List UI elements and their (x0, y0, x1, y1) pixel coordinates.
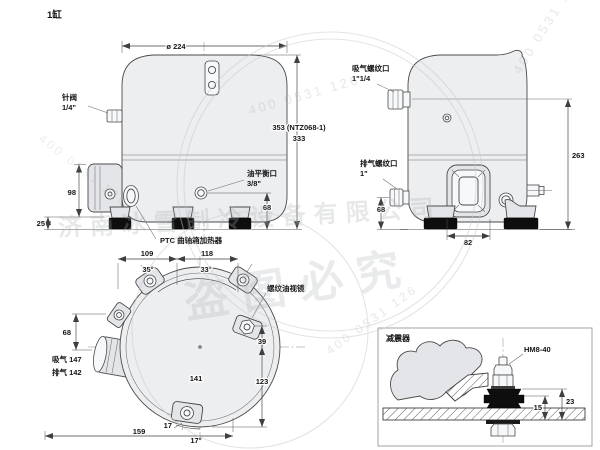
side-263-label: 263 (572, 151, 585, 160)
mounting-lug-bottom (171, 401, 203, 424)
top-68-label: 68 (63, 328, 71, 337)
front-height-label-2: 333 (293, 134, 306, 143)
page-title: 1缸 (47, 9, 62, 21)
technical-drawing: 1缸 (0, 0, 600, 450)
top-17-label: 17 (164, 421, 172, 430)
oil-balance-port (195, 187, 207, 199)
lifting-lug (205, 61, 219, 95)
oil-port-size: 3/8" (247, 179, 261, 188)
oil-port-label: 油平衡口 (247, 168, 277, 178)
needle-valve-size: 1/4" (62, 103, 76, 112)
needle-valve-leader (88, 106, 108, 113)
detail-15-label: 15 (534, 403, 542, 412)
detail-23-label: 23 (566, 397, 574, 406)
top-35deg-label: 35° (142, 265, 153, 274)
front-25-label: 25 (37, 219, 45, 228)
watermark-phone: 400 0531 126 (510, 0, 584, 77)
bolt-spec-label: HM8-40 (524, 345, 551, 354)
detail-view: 减震器 (378, 328, 592, 446)
shell-plug (443, 114, 451, 122)
damper-grommet (484, 389, 524, 408)
front-diameter-label: ø 224 (166, 42, 186, 51)
needle-valve-label: 针阀 (62, 92, 77, 102)
discharge-label: 排气螺纹口 (360, 158, 398, 168)
detail-title: 减震器 (386, 333, 411, 343)
suction-leader (377, 84, 394, 92)
discharge-leader (383, 179, 397, 189)
needle-valve-port (107, 110, 122, 122)
top-39-label: 39 (258, 337, 266, 346)
top-suction-note: 吸气 147 (52, 354, 82, 364)
discharge-size: 1" (360, 169, 368, 178)
top-109-label: 109 (141, 249, 154, 258)
drawing-page: 1缸 (0, 0, 600, 450)
foot-pad (504, 218, 538, 229)
base-plate (383, 408, 585, 420)
top-159-label: 159 (133, 427, 146, 436)
front-height-label-1: 353 (NTZ068-1) (272, 123, 326, 132)
top-discharge-note: 排气 142 (52, 367, 82, 377)
top-141-label: 141 (190, 374, 203, 383)
lower-nut (486, 420, 520, 436)
oil-equalizer-fitting (527, 185, 552, 196)
top-123-label: 123 (256, 377, 269, 386)
front-98-label: 98 (68, 188, 76, 197)
